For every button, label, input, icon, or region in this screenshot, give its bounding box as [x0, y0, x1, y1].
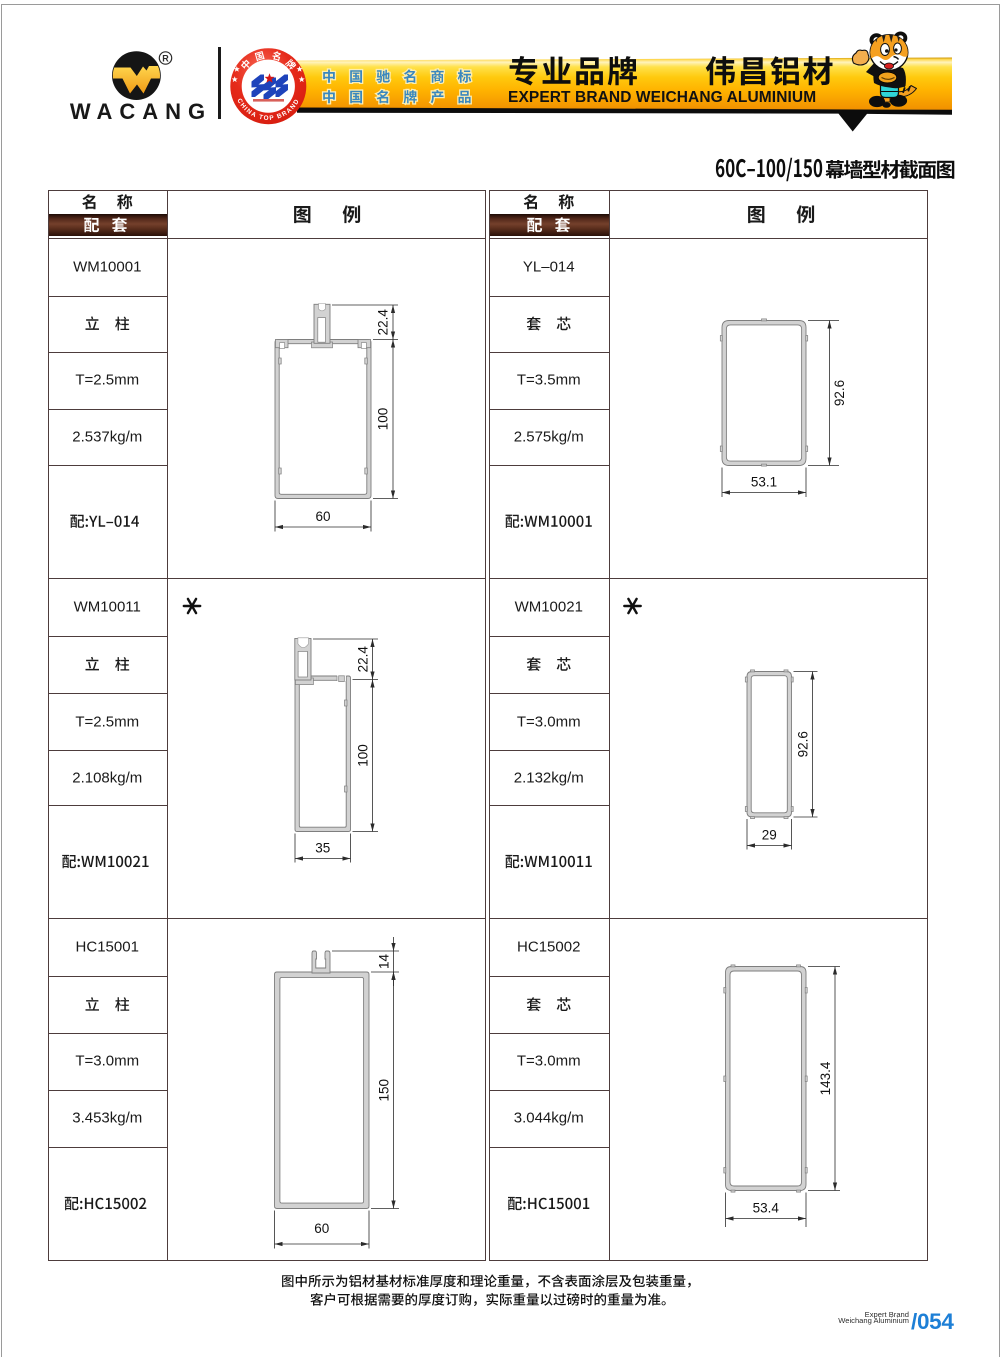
- svg-text:22.4: 22.4: [356, 646, 371, 673]
- svg-text:100: 100: [356, 744, 371, 767]
- svg-text:60: 60: [314, 1221, 329, 1236]
- svg-text:100: 100: [376, 408, 391, 431]
- svg-text:53.4: 53.4: [753, 1201, 780, 1216]
- svg-text:35: 35: [315, 841, 330, 856]
- svg-text:22.4: 22.4: [376, 309, 391, 336]
- svg-text:29: 29: [762, 828, 777, 843]
- svg-text:53.1: 53.1: [751, 475, 777, 490]
- svg-text:R: R: [162, 53, 169, 63]
- svg-text:92.6: 92.6: [832, 380, 847, 406]
- svg-text:14: 14: [377, 954, 392, 970]
- svg-text:92.6: 92.6: [796, 731, 811, 757]
- svg-text:60: 60: [315, 509, 330, 524]
- svg-text:143.4: 143.4: [818, 1061, 833, 1095]
- svg-text:150: 150: [377, 1079, 392, 1102]
